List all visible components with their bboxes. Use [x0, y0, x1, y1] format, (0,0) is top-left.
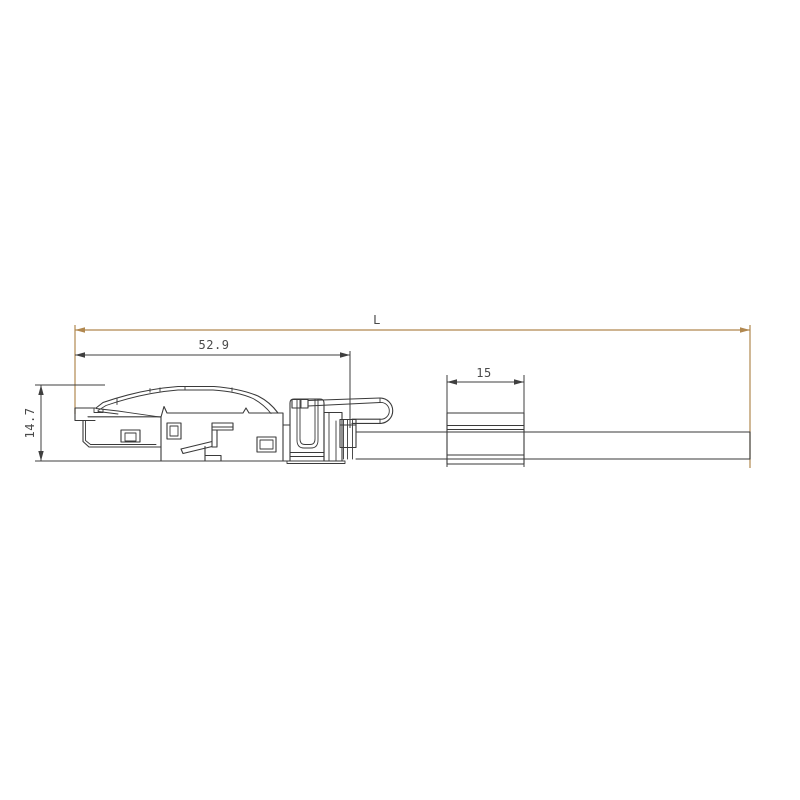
body2-square-window-outer [167, 423, 181, 439]
boot-bottom-ribs [290, 453, 324, 457]
loop-bend-inner [380, 402, 389, 419]
cable [356, 432, 750, 459]
body1-window-outer [121, 430, 140, 442]
arrowhead-left [75, 327, 85, 332]
body2-window-inner [260, 440, 273, 449]
body2-step [205, 447, 221, 462]
body2-top-slot [212, 423, 233, 430]
dimension-label-sleeve-length: 15 [476, 366, 491, 380]
latch-clip [96, 387, 278, 414]
cable-sleeve [447, 413, 524, 464]
arrowhead-right [740, 327, 750, 332]
body2-square-window-inner [170, 426, 178, 436]
body1-front-and-bottom [83, 421, 161, 448]
connector-plug [75, 387, 393, 464]
technical-drawing-canvas: L 52.9 14.7 15 [0, 0, 800, 800]
dimension-connector-length: 52.9 [75, 338, 350, 428]
drawing-svg: L 52.9 14.7 15 [0, 0, 800, 800]
arrowhead-left [447, 379, 457, 384]
sleeve-outline [447, 413, 524, 464]
body2-ramp [181, 442, 212, 454]
dimension-label-connector-length: 52.9 [199, 338, 230, 352]
body1-window-inner [125, 433, 136, 441]
arrowhead-bottom [38, 451, 43, 461]
boot-flange-lines [329, 413, 336, 462]
dimension-label-connector-height: 14.7 [23, 408, 37, 439]
body-main-section [161, 407, 290, 462]
latch-base-platform [96, 409, 161, 418]
arrowhead-left [75, 352, 85, 357]
arrowhead-right [514, 379, 524, 384]
dimension-label-overall-length: L [373, 313, 381, 327]
boot-flange [324, 413, 342, 462]
body2-outline [161, 407, 283, 462]
body-front-section [83, 409, 161, 448]
strain-relief-boot [287, 399, 345, 464]
dimension-sleeve-length: 15 [447, 366, 524, 467]
front-tab-outline [75, 408, 95, 421]
body2-vertical-bar [212, 430, 217, 447]
arrowhead-right [340, 352, 350, 357]
arrowhead-top [38, 385, 43, 395]
latch-segment-ticks [117, 387, 232, 405]
